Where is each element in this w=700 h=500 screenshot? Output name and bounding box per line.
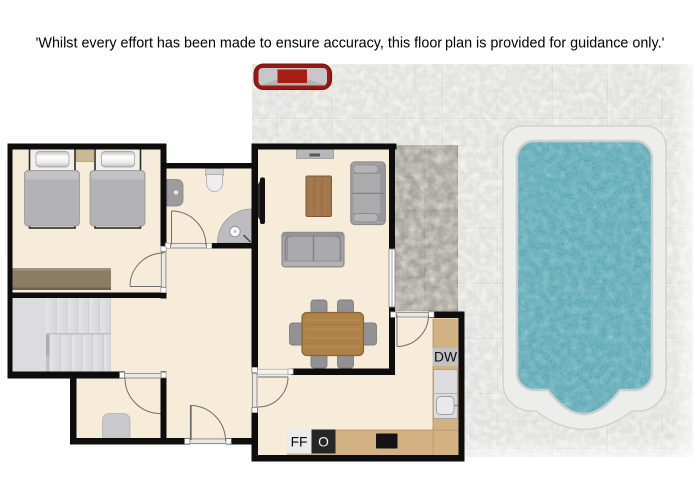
svg-text:'Whilst every effort has been: 'Whilst every effort has been made to en…	[36, 36, 665, 52]
svg-text:FF: FF	[291, 435, 308, 450]
svg-text:O: O	[318, 435, 329, 450]
svg-text:DW: DW	[434, 350, 457, 365]
